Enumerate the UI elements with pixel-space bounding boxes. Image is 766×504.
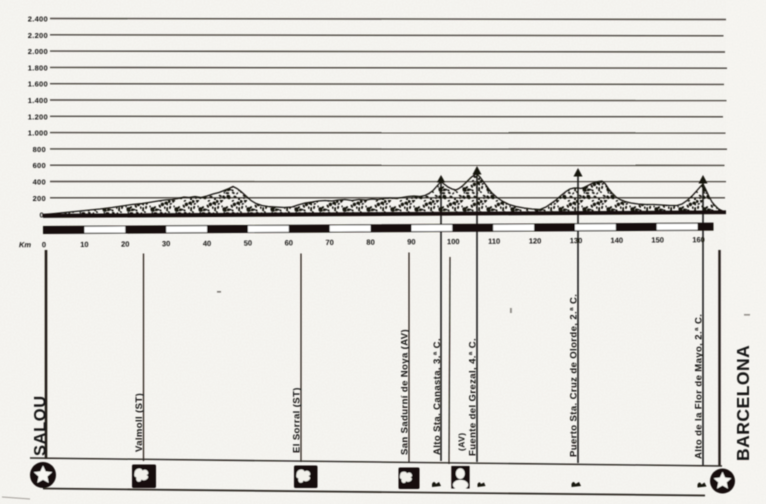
svg-text:San Sadurní de Noya (AV): San Sadurní de Noya (AV) — [400, 329, 411, 455]
svg-text:1.400: 1.400 — [28, 96, 48, 105]
svg-text:20: 20 — [121, 240, 129, 249]
svg-text:200: 200 — [33, 194, 46, 203]
svg-text:80: 80 — [366, 238, 374, 247]
svg-text:1.800: 1.800 — [28, 63, 48, 72]
svg-text:600: 600 — [33, 161, 46, 170]
svg-text:40: 40 — [203, 239, 211, 248]
svg-text:2.000: 2.000 — [28, 47, 48, 56]
svg-text:400: 400 — [33, 178, 46, 187]
svg-text:800: 800 — [33, 145, 46, 154]
svg-text:160: 160 — [692, 235, 705, 244]
svg-text:El Sorral (ST): El Sorral (ST) — [292, 387, 303, 453]
svg-text:1.000: 1.000 — [28, 129, 48, 138]
svg-text:140: 140 — [610, 236, 623, 245]
svg-text:1.600: 1.600 — [28, 80, 48, 89]
svg-text:30: 30 — [162, 239, 170, 248]
svg-text:2.200: 2.200 — [28, 31, 48, 40]
svg-text:130: 130 — [570, 236, 583, 245]
svg-text:Fuente del Grezal, 4.ª C.: Fuente del Grezal, 4.ª C. — [468, 338, 479, 456]
svg-text:Alto de la Flor de Mayo, 2.ª C: Alto de la Flor de Mayo, 2.ª C. — [694, 314, 705, 459]
svg-text:(AV): (AV) — [457, 433, 467, 451]
svg-text:1.200: 1.200 — [28, 112, 48, 121]
svg-text:Puerto Sta. Cruz de Olorde, 2.: Puerto Sta. Cruz de Olorde, 2.ª C. — [569, 294, 580, 457]
svg-text:50: 50 — [244, 239, 252, 248]
svg-text:70: 70 — [325, 238, 333, 247]
svg-text:110: 110 — [488, 237, 500, 246]
svg-text:Valmoll (ST): Valmoll (ST) — [134, 393, 145, 452]
svg-text:2.400: 2.400 — [28, 15, 48, 24]
svg-text:10: 10 — [80, 240, 88, 249]
svg-text:BARCELONA: BARCELONA — [733, 345, 753, 461]
svg-text:150: 150 — [651, 235, 664, 244]
svg-text:0: 0 — [42, 240, 46, 249]
svg-text:120: 120 — [529, 236, 542, 245]
svg-text:Alto Sta. Canasta, 3.ª C.: Alto Sta. Canasta, 3.ª C. — [432, 338, 443, 455]
svg-text:90: 90 — [407, 237, 415, 246]
svg-text:Km: Km — [19, 240, 31, 249]
svg-text:100: 100 — [447, 237, 460, 246]
svg-text:SALOU: SALOU — [32, 395, 50, 456]
svg-text:60: 60 — [285, 238, 293, 247]
